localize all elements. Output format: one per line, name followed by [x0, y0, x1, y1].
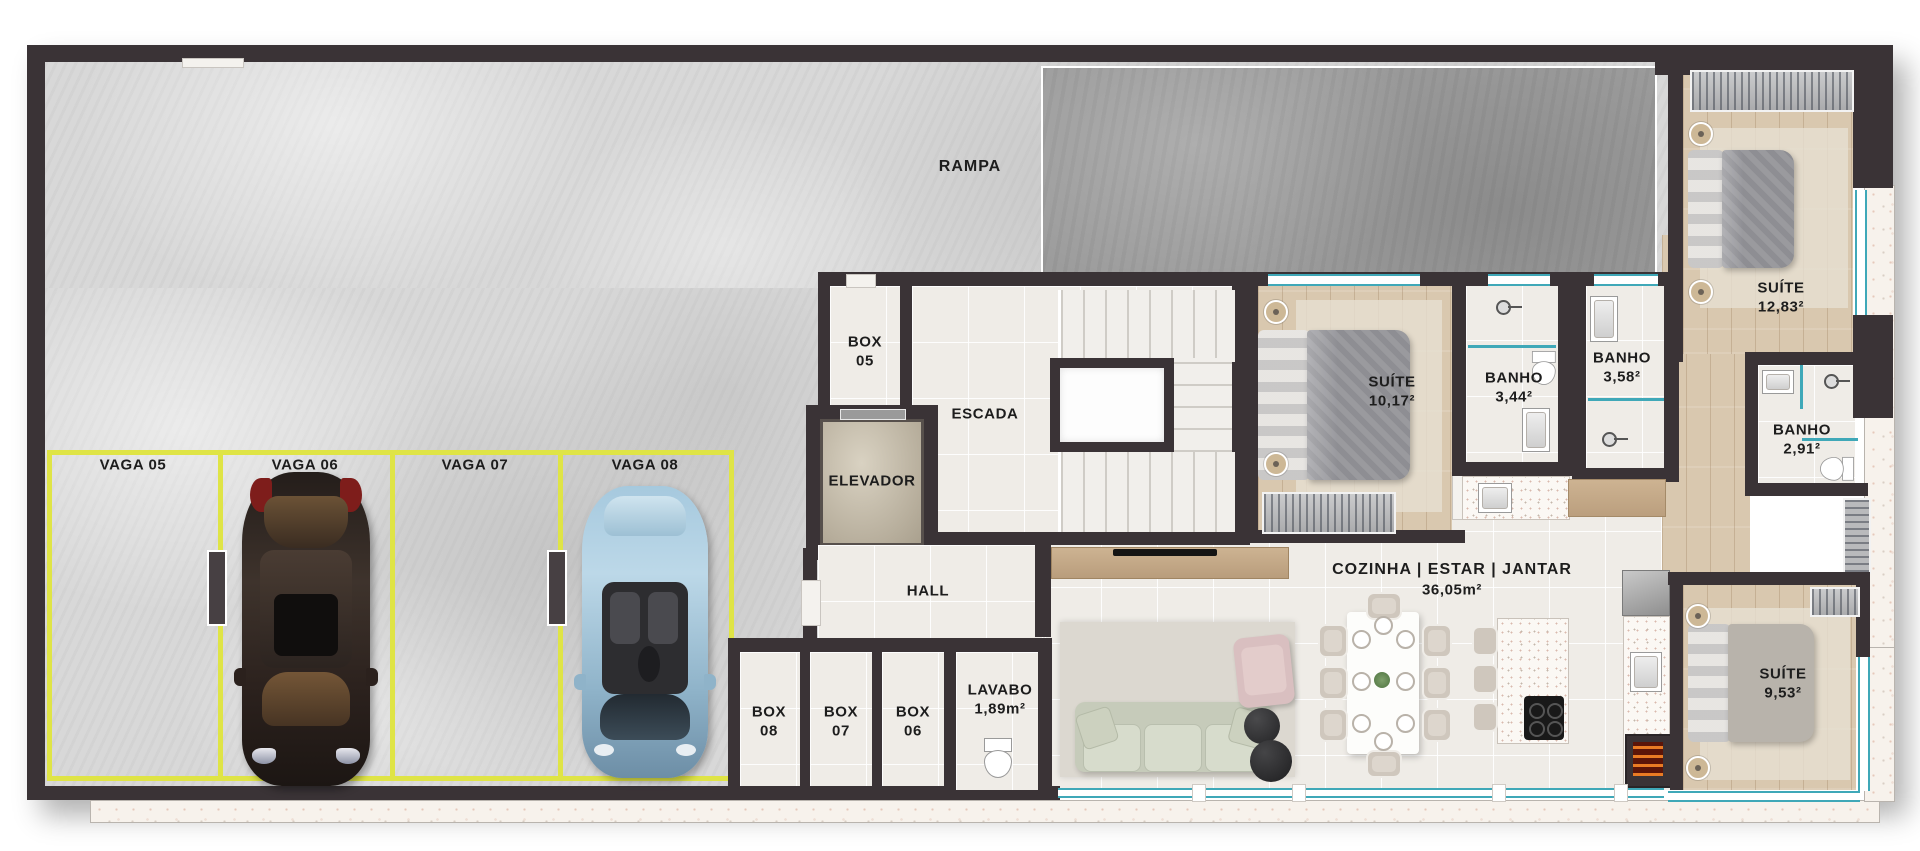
banho-a-label: BANHO 3,44² [1485, 369, 1543, 407]
banho-a-shower-glass [1468, 345, 1556, 348]
suite-b-closet [1690, 70, 1854, 112]
box07-line1: BOX [824, 703, 858, 720]
dining-chair [1422, 624, 1452, 658]
boxrow-left-wall [728, 638, 740, 790]
banho-b-sink [1590, 296, 1618, 342]
box08-line1: BOX [752, 703, 786, 720]
place-setting [1352, 672, 1371, 691]
suite-b-left-wall [1668, 62, 1683, 362]
car-rear-deck [604, 496, 686, 536]
banho-b-shower-glass [1588, 398, 1664, 401]
ceiling-light [1689, 122, 1713, 146]
toilet-tank [1842, 457, 1854, 481]
armchair-cushion [1241, 644, 1288, 696]
bed-pillows [1688, 624, 1731, 742]
floor-plan-canvas: VAGA 05 VAGA 06 VAGA 07 VAGA 08 RAMPA [0, 0, 1920, 851]
tv [1113, 549, 1217, 556]
suite-c-window-bottom [1668, 791, 1860, 802]
escada-label: ESCADA [952, 406, 1019, 425]
banho-c-top-wall [1745, 352, 1868, 365]
hall-wardrobe [1843, 498, 1871, 574]
burner [1547, 721, 1563, 737]
car-mirror-left [234, 668, 246, 686]
banho-c-glass-v [1800, 365, 1803, 409]
kitchen-counter-wood [1568, 479, 1666, 517]
suite-c-window-right [1858, 657, 1870, 791]
parking-space-label-07: VAGA 07 [442, 457, 509, 476]
banho-b-area: 3,58² [1603, 368, 1640, 385]
box05-left-wall [818, 272, 830, 410]
suite-b-name: SUÍTE [1757, 279, 1804, 296]
burner [1529, 703, 1545, 719]
bbq-grill [1625, 734, 1675, 788]
sofa-cushion [1144, 724, 1202, 772]
ceiling-light [1686, 604, 1710, 628]
banho-a-sink [1522, 408, 1550, 452]
glass-mullion [1492, 784, 1506, 802]
kitchen-sink [1478, 483, 1512, 513]
banho-c-shower-head [1824, 374, 1839, 389]
banho-a-shower-head [1496, 300, 1511, 315]
parking-line-v2 [390, 450, 395, 781]
banho-b-left-wall [1572, 272, 1586, 476]
glass-mullion [1614, 784, 1628, 802]
place-setting [1374, 616, 1393, 635]
car-mirror-right [704, 674, 716, 690]
lavabo-label: LAVABO 1,89m² [968, 681, 1033, 719]
place-setting [1396, 630, 1415, 649]
lavabo-right-wall [1038, 638, 1052, 790]
car-headlight-right [336, 748, 360, 764]
suite-c-label: SUÍTE 9,53² [1759, 665, 1806, 703]
box06-label: BOX 06 [896, 703, 930, 741]
glass-mullion [1192, 784, 1206, 802]
box06-line2: 06 [904, 722, 922, 739]
ceiling-light [1264, 300, 1288, 324]
suite-a-closet [1262, 492, 1396, 534]
stair-landing [1060, 368, 1164, 442]
stair-flight-top [1058, 290, 1235, 362]
sidewalk-bottom [90, 800, 1880, 823]
suite-a-left-wall [1245, 272, 1258, 543]
sofa [1075, 702, 1271, 776]
box05-line1: BOX [848, 333, 882, 350]
suite-a-name: SUÍTE [1368, 373, 1415, 390]
outer-wall-bottom [27, 786, 1060, 800]
car-console [638, 646, 660, 682]
hall-entry-door [801, 580, 821, 626]
parking-line-v0 [47, 450, 52, 781]
bed-pillows [1688, 150, 1724, 268]
box08-label: BOX 08 [752, 703, 786, 741]
bbq-coals [1633, 742, 1663, 776]
banho-b-label: BANHO 3,58² [1593, 349, 1651, 387]
car-hood-glass [600, 694, 690, 740]
ceiling-light [1689, 280, 1713, 304]
island-stool [1472, 626, 1498, 656]
boxrow-top-wall [728, 638, 1052, 652]
wheel-stop-vaga06 [207, 550, 227, 626]
ottoman-dark [1244, 708, 1280, 744]
suite-b-window [1855, 190, 1867, 322]
car-headlight-left [594, 744, 614, 756]
box08-07-divider [800, 652, 810, 790]
suite-a-window [1268, 274, 1420, 286]
car-headlight-left [252, 748, 276, 764]
outer-wall-left [27, 45, 45, 800]
escada-bottom-wall [912, 532, 1250, 545]
car-rear-glass [264, 496, 348, 548]
banho-c-sink [1762, 370, 1794, 394]
glass-mullion [1292, 784, 1306, 802]
banho-a-name: BANHO [1485, 369, 1543, 386]
lavabo-name: LAVABO [968, 681, 1033, 698]
box08-line2: 08 [760, 722, 778, 739]
suite-b-area: 12,83² [1758, 298, 1804, 315]
suite-c-top-wall [1668, 572, 1868, 585]
banho-a-window [1488, 274, 1550, 286]
banho-c-name: BANHO [1773, 421, 1831, 438]
outer-wall-right-column [1853, 62, 1893, 188]
box07-label: BOX 07 [824, 703, 858, 741]
place-setting [1352, 714, 1371, 733]
car-sunroof [274, 594, 338, 656]
place-setting [1352, 630, 1371, 649]
car-seat-right [648, 592, 678, 644]
burner [1547, 703, 1563, 719]
parking-space-label-08: VAGA 08 [612, 457, 679, 476]
island-stool [1472, 702, 1498, 732]
banho-b-name: BANHO [1593, 349, 1651, 366]
dining-chair [1422, 708, 1452, 742]
dining-chair [1366, 750, 1402, 778]
fridge [1622, 570, 1670, 616]
dining-chair [1318, 708, 1348, 742]
place-setting [1374, 732, 1393, 751]
banho-a-bottom-wall [1452, 462, 1572, 476]
parking-space-label-05: VAGA 05 [100, 457, 167, 476]
box07-line2: 07 [832, 722, 850, 739]
hall-right-column [1035, 545, 1051, 637]
toilet-bowl [984, 750, 1012, 778]
box05-label: BOX 05 [848, 333, 882, 371]
suite-c-left-wall [1670, 572, 1683, 790]
box05-door [846, 274, 876, 288]
table-centerpiece [1374, 672, 1390, 688]
bed-quilt [1722, 150, 1794, 268]
suite-a-right-wall-upper [1452, 272, 1466, 464]
stair-flight-bottom [1058, 452, 1235, 532]
suite-c-wardrobe [1810, 587, 1860, 617]
outer-wall-top [27, 45, 1893, 62]
dining-chair [1422, 666, 1452, 700]
banho-c-left-wall [1745, 352, 1758, 494]
suite-a-label: SUÍTE 10,17² [1368, 373, 1415, 411]
living-area-label: 36,05m² [1422, 582, 1482, 601]
car-seat-left [610, 592, 640, 644]
car-blue-convertible [582, 486, 708, 778]
ramp-label: RAMPA [939, 157, 1001, 177]
car-mirror-left [574, 674, 586, 690]
ceiling-light [1686, 756, 1710, 780]
toilet-bowl [1820, 457, 1844, 481]
ottoman-dark [1250, 740, 1292, 782]
box06-lavabo-divider [944, 652, 956, 790]
elevator-door-top [840, 409, 906, 420]
dining-chair [1318, 624, 1348, 658]
elevator-label: ELEVADOR [828, 473, 915, 492]
wheel-stop-vaga08 [547, 550, 567, 626]
car-mirror-right [366, 668, 378, 686]
dining-chair [1318, 666, 1348, 700]
corridor-floor-upper [1683, 330, 1853, 354]
box06-line1: BOX [896, 703, 930, 720]
living-glass-wall [1058, 788, 1664, 798]
suite-c-area: 9,53² [1764, 684, 1801, 701]
car-windshield [262, 672, 350, 726]
suite-a-area: 10,17² [1369, 392, 1415, 409]
suite-b-label: SUÍTE 12,83² [1757, 279, 1804, 317]
place-setting [1396, 672, 1415, 691]
ceiling-light [1264, 452, 1288, 476]
banho-c-right-mass [1853, 315, 1893, 418]
top-wall-notch [182, 58, 244, 68]
cooktop [1524, 696, 1564, 740]
banho-c-bottom-wall [1745, 483, 1868, 496]
ramp-slab [1041, 66, 1657, 288]
box05-line2: 05 [856, 352, 874, 369]
lavabo-area: 1,89m² [974, 700, 1025, 717]
banho-c-label: BANHO 2,91² [1773, 421, 1831, 459]
lavabo-toilet [982, 738, 1012, 778]
car-dark-sedan [242, 472, 370, 786]
banho-b-window [1594, 274, 1658, 286]
island-stool [1472, 664, 1498, 694]
banho-c-area: 2,91² [1783, 440, 1820, 457]
banho-a-right-wall [1558, 272, 1572, 476]
box05-right-wall [900, 272, 912, 410]
kitchen-sink-2 [1630, 652, 1662, 692]
banho-c-toilet [1820, 455, 1854, 481]
banho-a-area: 3,44² [1495, 388, 1532, 405]
suite-c-name: SUÍTE [1759, 665, 1806, 682]
stair-flight-right [1174, 358, 1232, 452]
car-headlight-right [676, 744, 696, 756]
box07-06-divider [872, 652, 882, 790]
banho-b-shower-head [1602, 432, 1617, 447]
burner [1529, 721, 1545, 737]
hall-label: HALL [907, 583, 949, 602]
suite-b-bed [1688, 150, 1794, 268]
armchair-pink [1232, 633, 1295, 708]
living-label: COZINHA | ESTAR | JANTAR [1332, 560, 1572, 580]
place-setting [1396, 714, 1415, 733]
